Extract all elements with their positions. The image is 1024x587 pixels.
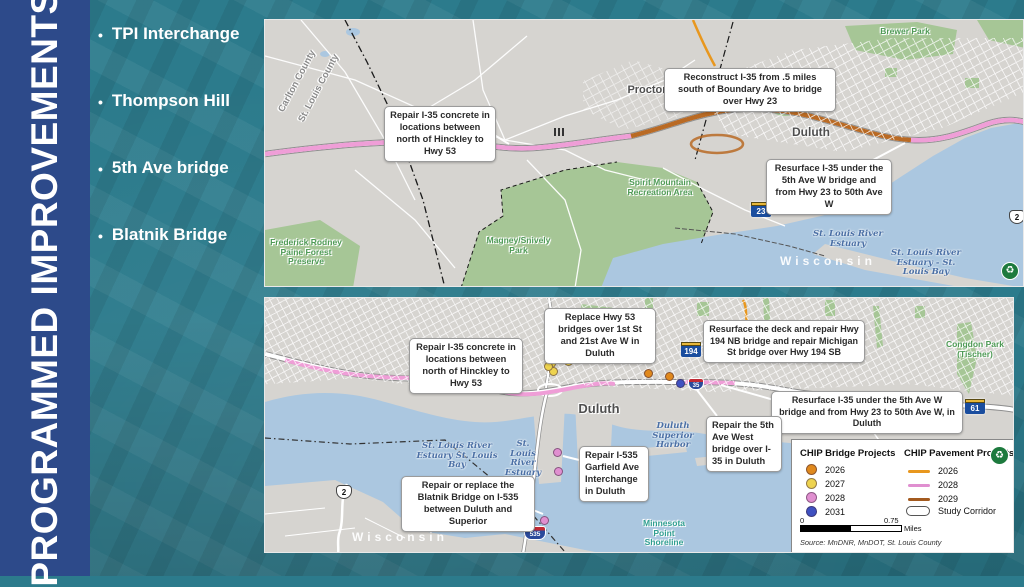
legend-bridge-title: CHIP Bridge Projects bbox=[800, 448, 895, 459]
legend-source: Source: MnDNR, MnDOT, St. Louis County bbox=[800, 538, 941, 547]
callout-blatnik-bridge: Repair or replace the Blatnik Bridge on … bbox=[401, 476, 535, 532]
legend-year: 2029 bbox=[938, 494, 958, 504]
recycling-logo-icon: ♻ bbox=[1001, 262, 1019, 280]
legend-item: 2027 bbox=[806, 478, 845, 489]
list-item: •Thompson Hill bbox=[98, 91, 270, 113]
slide-canvas: PROGRAMMED IMPROVEMENTS •TPI Interchange… bbox=[0, 0, 1024, 576]
pavement-2026-swatch bbox=[908, 470, 930, 473]
legend-item: 2028 bbox=[806, 492, 845, 503]
bridge-2031-dot bbox=[676, 379, 685, 388]
callout-resurface-i35-5thave: Resurface I-35 under the 5th Ave W bridg… bbox=[771, 391, 963, 434]
legend-year: 2027 bbox=[825, 479, 845, 489]
map-legend: CHIP Bridge Projects 2026 2027 2028 2031… bbox=[791, 439, 1014, 553]
slide-title: PROGRAMMED IMPROVEMENTS bbox=[24, 0, 66, 587]
mn-shield-number: 194 bbox=[681, 346, 701, 357]
city-label-duluth: Duluth bbox=[569, 402, 629, 417]
study-corridor-swatch bbox=[906, 506, 930, 516]
scale-mid: 0.75 bbox=[884, 516, 899, 525]
callout-repair-i35-concrete: Repair I-35 concrete in locations betwee… bbox=[409, 338, 523, 394]
bridge-2027-swatch bbox=[806, 478, 817, 489]
legend-item: Study Corridor bbox=[906, 506, 996, 516]
legend-item: 2028 bbox=[908, 480, 958, 490]
bullet-label: Thompson Hill bbox=[112, 91, 230, 111]
legend-item: 2031 bbox=[806, 506, 845, 517]
park-label-brewer: Brewer Park bbox=[865, 27, 945, 37]
bullet-icon: • bbox=[98, 225, 103, 247]
title-sidebar: PROGRAMMED IMPROVEMENTS bbox=[0, 0, 90, 576]
bridge-2031-swatch bbox=[806, 506, 817, 517]
list-item: •TPI Interchange bbox=[98, 24, 270, 46]
water-label-harbor: Duluth Superior Harbor bbox=[637, 422, 709, 451]
park-label-magney-snively: Magney/Snively Park bbox=[481, 236, 556, 255]
pavement-2029-swatch bbox=[908, 498, 930, 501]
bullet-icon: • bbox=[98, 24, 103, 46]
legend-item: 2026 bbox=[806, 464, 845, 475]
state-label-wisconsin: Wisconsin bbox=[763, 255, 893, 268]
scale-zero: 0 bbox=[800, 516, 804, 525]
callout-resurface-hwy194-deck: Resurface the deck and repair Hwy 194 NB… bbox=[703, 320, 865, 363]
bridge-2026-dot bbox=[644, 369, 653, 378]
callout-repair-i535-garfield: Repair I-535 Garfield Ave Interchange in… bbox=[579, 446, 649, 502]
list-item: •5th Ave bridge bbox=[98, 158, 270, 180]
map-bottom-panel: Enger Park Duluth Congdon Park (Tischer)… bbox=[264, 297, 1014, 553]
park-label-congdon: Congdon Park (Tischer) bbox=[939, 340, 1011, 359]
bridge-2028-dot bbox=[553, 448, 562, 457]
water-label-estuary-bay: St. Louis River Estuary - St. Louis Bay bbox=[891, 249, 961, 278]
water-label-estuary: St. Louis River Estuary bbox=[503, 440, 543, 478]
scale-unit: Miles bbox=[904, 524, 922, 533]
park-label-frederick-rodney: Frederick Rodney Paine Forest Preserve bbox=[265, 238, 347, 267]
study-corridor-label: Study Corridor bbox=[938, 506, 996, 516]
callout-repair-5thave-west-bridge: Repair the 5th Ave West bridge over I-35… bbox=[706, 416, 782, 472]
callout-replace-hwy53-bridges: Replace Hwy 53 bridges over 1st St and 2… bbox=[544, 308, 656, 364]
park-label-spirit-mountain: Spirit Mountain Recreation Area bbox=[623, 178, 697, 197]
bullet-label: 5th Ave bridge bbox=[112, 158, 229, 178]
legend-year: 2031 bbox=[825, 507, 845, 517]
mn-shield-number: 61 bbox=[965, 403, 985, 414]
callout-reconstruct-i35: Reconstruct I-35 from .5 miles south of … bbox=[664, 68, 836, 112]
bullet-icon: • bbox=[98, 91, 103, 113]
legend-item: 2029 bbox=[908, 494, 958, 504]
us-hwy-2-shield: 2 bbox=[1009, 210, 1024, 224]
i35-shield: 35 bbox=[688, 378, 704, 390]
pavement-2028-swatch bbox=[908, 484, 930, 487]
callout-repair-i35-concrete: Repair I-35 concrete in locations betwee… bbox=[384, 106, 496, 162]
water-label-estuary: St. Louis River Estuary bbox=[813, 230, 883, 249]
bullet-icon: • bbox=[98, 158, 103, 180]
city-label-duluth: Duluth bbox=[781, 126, 841, 139]
legend-year: 2026 bbox=[938, 466, 958, 476]
scale-bar bbox=[800, 525, 902, 532]
legend-year: 2026 bbox=[825, 465, 845, 475]
legend-year: 2028 bbox=[825, 493, 845, 503]
callout-resurface-i35-5thave: Resurface I-35 under the 5th Ave W bridg… bbox=[766, 159, 892, 215]
legend-item: 2026 bbox=[908, 466, 958, 476]
structure-icon bbox=[554, 128, 564, 136]
bullet-label: Blatnik Bridge bbox=[112, 225, 227, 245]
state-label-wisconsin: Wisconsin bbox=[335, 531, 465, 544]
bridge-2026-swatch bbox=[806, 464, 817, 475]
list-item: •Blatnik Bridge bbox=[98, 225, 270, 247]
bridge-2028-swatch bbox=[806, 492, 817, 503]
legend-year: 2028 bbox=[938, 480, 958, 490]
mn-hwy-61-shield: 61 bbox=[965, 399, 985, 414]
bridge-2028-dot bbox=[554, 467, 563, 476]
bullet-label: TPI Interchange bbox=[112, 24, 240, 44]
bridge-2026-dot bbox=[665, 372, 674, 381]
bridge-2028-dot bbox=[540, 516, 549, 525]
recycling-logo-icon: ♻ bbox=[990, 446, 1009, 465]
bullet-list: •TPI Interchange •Thompson Hill •5th Ave… bbox=[98, 24, 270, 292]
map-top-panel: Carlton County St. Louis County Proctor … bbox=[264, 19, 1024, 287]
shore-label-minnesota-point: Minnesota Point Shoreline bbox=[635, 519, 693, 548]
water-label-estuary-bay: St. Louis River Estuary St. Louis Bay bbox=[411, 442, 503, 471]
mn-hwy-194-shield: 194 bbox=[681, 342, 701, 357]
